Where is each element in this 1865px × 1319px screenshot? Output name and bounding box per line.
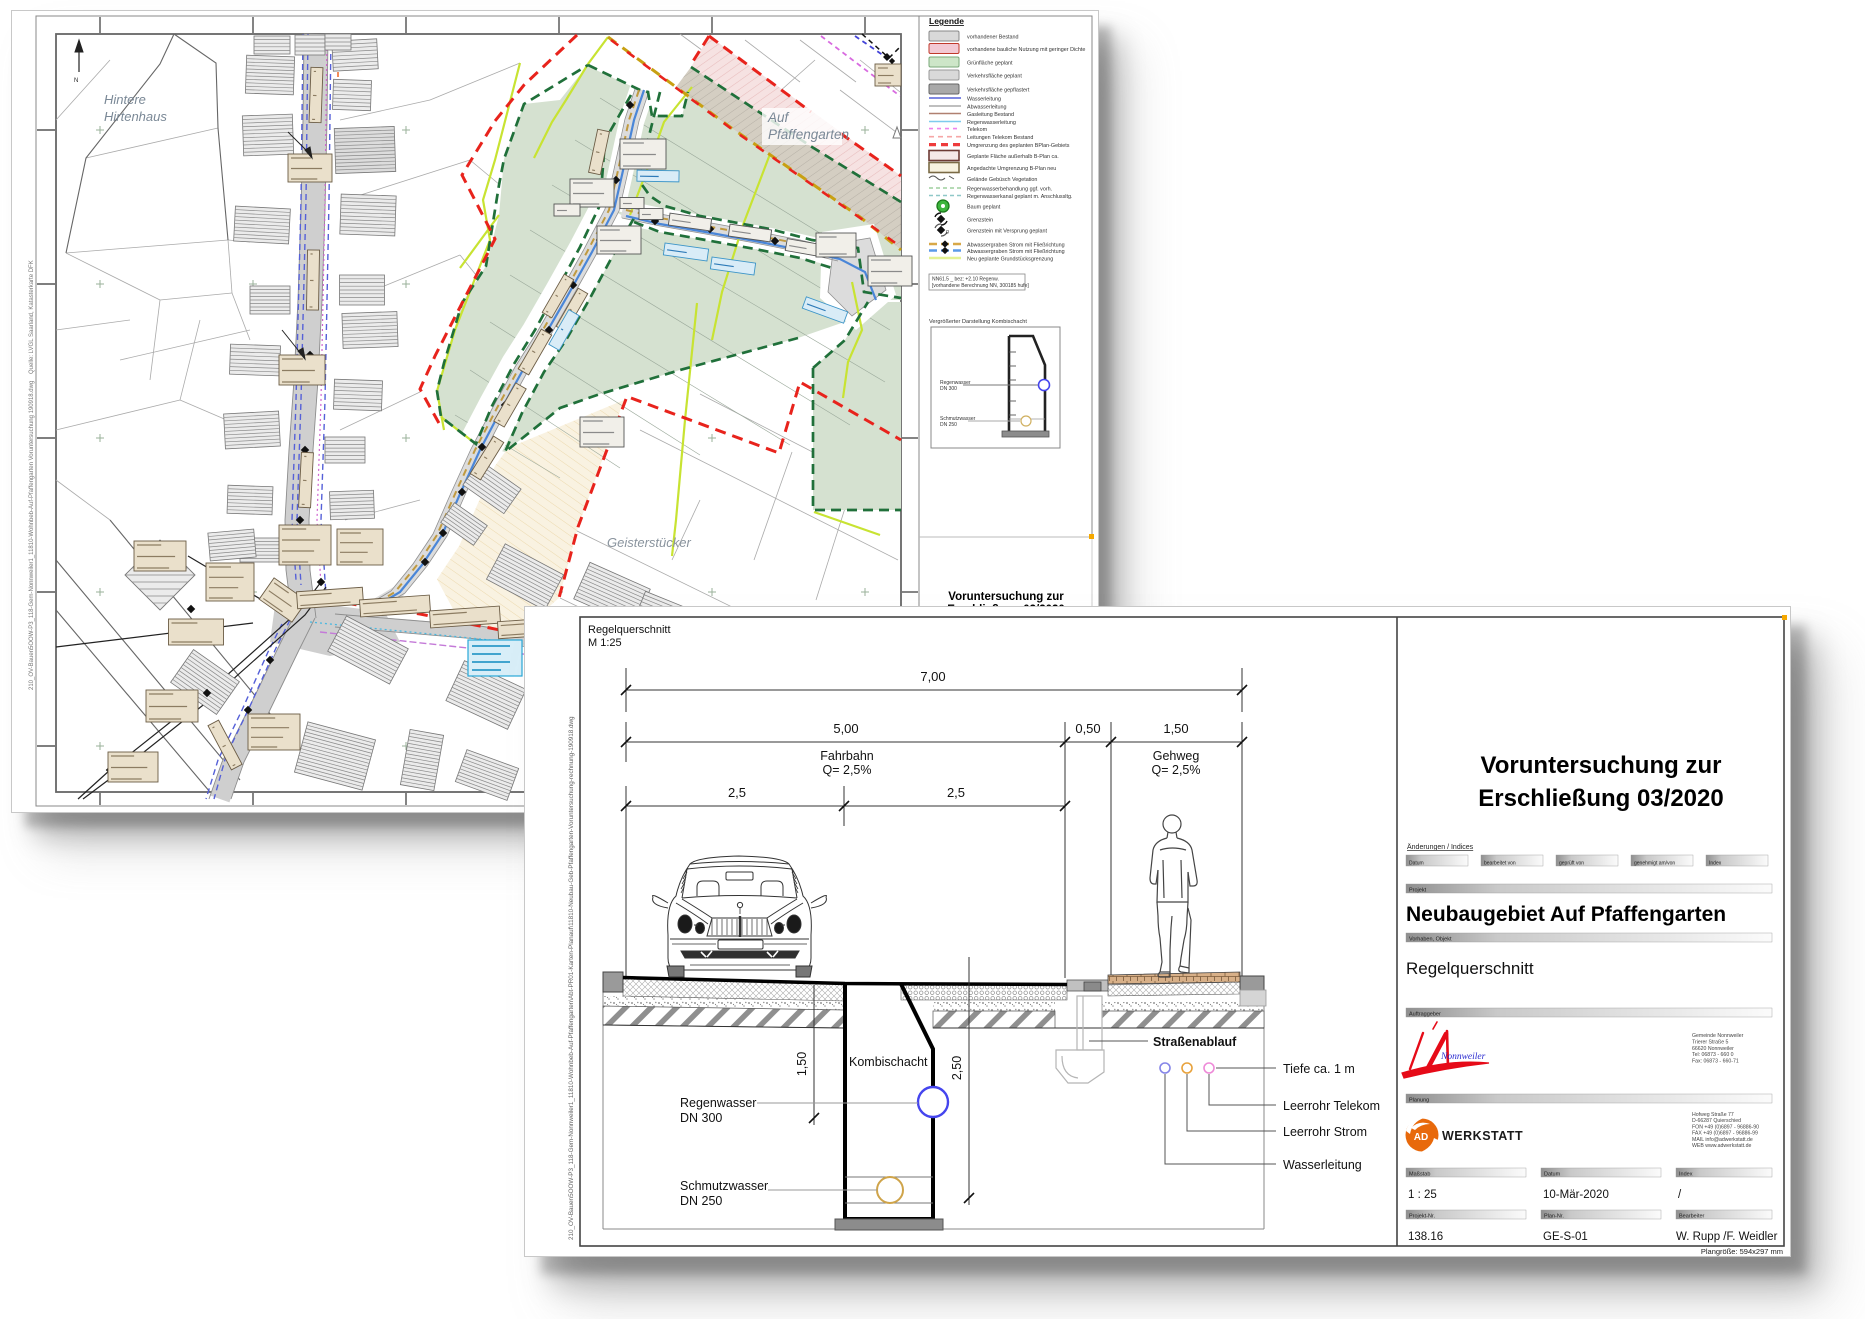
svg-text:Neu geplante Grundstücksgrenzu: Neu geplante Grundstücksgrenzung: [967, 257, 1053, 263]
svg-text:M 1:25: M 1:25: [588, 637, 622, 649]
svg-text:Datum: Datum: [1409, 861, 1424, 867]
svg-text:Regenwasserbehandlung ggf. vor: Regenwasserbehandlung ggf. vorh.: [967, 187, 1052, 193]
svg-text:Grenzstein mit Versprung gepla: Grenzstein mit Versprung geplant: [967, 229, 1048, 235]
svg-text:vorhandene bauliche Nutzung mi: vorhandene bauliche Nutzung mit geringer…: [967, 47, 1085, 53]
svg-text:vorhandener Bestand: vorhandener Bestand: [967, 35, 1019, 41]
svg-text:Telekom: Telekom: [967, 127, 988, 133]
svg-text:geprüft von: geprüft von: [1559, 861, 1584, 867]
svg-text:MAIL info@adwerkstatt.de: MAIL info@adwerkstatt.de: [1692, 1137, 1753, 1143]
svg-text:Leitungen Telekom Bestand: Leitungen Telekom Bestand: [967, 135, 1033, 141]
svg-text:Kombischacht: Kombischacht: [849, 1055, 928, 1069]
svg-text:genehmigt am/von: genehmigt am/von: [1634, 861, 1675, 867]
svg-text:Angedachte Umgrenzung B-Plan n: Angedachte Umgrenzung B-Plan neu: [967, 166, 1056, 172]
svg-text:0,50: 0,50: [1075, 721, 1100, 736]
svg-text:DN 250: DN 250: [680, 1194, 722, 1208]
svg-text:Q= 2,5%: Q= 2,5%: [1152, 763, 1201, 777]
svg-text:Nonnweiler: Nonnweiler: [1440, 1052, 1486, 1062]
svg-text:/: /: [1678, 1189, 1682, 1201]
svg-text:W. Rupp /F. Weidler: W. Rupp /F. Weidler: [1676, 1231, 1778, 1243]
svg-text:N: N: [74, 78, 78, 84]
svg-text:Trierer Straße 5: Trierer Straße 5: [1692, 1039, 1729, 1045]
svg-text:NN61.5 _ bez: +2.10 Regenw.: NN61.5 _ bez: +2.10 Regenw.: [932, 277, 999, 283]
svg-text:66620 Nonnweiler: 66620 Nonnweiler: [1692, 1046, 1734, 1052]
svg-text:Bearbeiter: Bearbeiter: [1679, 1214, 1705, 1220]
svg-text:FON +49 (0)6897 - 96886-90: FON +49 (0)6897 - 96886-90: [1692, 1124, 1759, 1130]
svg-text:Maßstab: Maßstab: [1409, 1172, 1430, 1178]
svg-text:Wasserleitung: Wasserleitung: [967, 97, 1001, 103]
svg-text:1,50: 1,50: [1163, 721, 1188, 736]
svg-text:Umgrenzung des geplanten BPlan: Umgrenzung des geplanten BPlan-Gebiets: [967, 143, 1070, 149]
svg-text:Q= 2,5%: Q= 2,5%: [823, 763, 872, 777]
svg-text:Regelquerschnitt: Regelquerschnitt: [588, 624, 671, 636]
svg-text:Voruntersuchung zur: Voruntersuchung zur: [1481, 752, 1722, 779]
svg-text:Pfaffengarten: Pfaffengarten: [768, 127, 849, 142]
svg-text:Regenwasser: Regenwasser: [680, 1096, 756, 1110]
svg-text:g: g: [946, 229, 949, 235]
svg-text:Gemeinde Nonnweiler: Gemeinde Nonnweiler: [1692, 1033, 1744, 1039]
svg-text:Schmutzwasser: Schmutzwasser: [680, 1179, 768, 1193]
svg-text:Legende: Legende: [929, 16, 964, 26]
svg-text:Planung: Planung: [1409, 1098, 1429, 1104]
svg-text:Neubaugebiet Auf Pfaffengarten: Neubaugebiet Auf Pfaffengarten: [1406, 903, 1726, 926]
svg-text:Hintere: Hintere: [104, 92, 146, 107]
svg-text:Wasserleitung: Wasserleitung: [1283, 1158, 1362, 1172]
svg-text:D-66287 Quierschied: D-66287 Quierschied: [1692, 1118, 1741, 1124]
svg-text:DN 300: DN 300: [940, 386, 957, 392]
svg-text:Baum geplant: Baum geplant: [967, 205, 1001, 211]
svg-text:7,00: 7,00: [920, 669, 945, 684]
svg-text:Hirtenhaus: Hirtenhaus: [104, 109, 167, 124]
svg-text:2,5: 2,5: [728, 785, 746, 800]
svg-text:210_OV-Bauen5OOW-P3_118-Gem-No: 210_OV-Bauen5OOW-P3_118-Gem-Nonnweiler1_…: [568, 716, 575, 1240]
svg-text:Verkehrsfläche gepflastert: Verkehrsfläche gepflastert: [967, 88, 1030, 94]
svg-text:Auf: Auf: [767, 110, 790, 125]
svg-text:Straßenablauf: Straßenablauf: [1153, 1035, 1237, 1049]
svg-text:Voruntersuchung zur: Voruntersuchung zur: [948, 591, 1064, 603]
svg-text:Leerrohr Strom: Leerrohr Strom: [1283, 1125, 1367, 1139]
svg-text:Regenwasserleitung: Regenwasserleitung: [967, 120, 1016, 126]
svg-text:[vorhandene Berechnung NN, 300: [vorhandene Berechnung NN, 300185 hufe]: [932, 283, 1029, 289]
svg-text:2,5: 2,5: [947, 785, 965, 800]
svg-text:Plangröße: 594x297 mm: Plangröße: 594x297 mm: [1701, 1247, 1783, 1256]
svg-text:Fax: 06873 - 660-71: Fax: 06873 - 660-71: [1692, 1059, 1739, 1065]
svg-text:Tiefe ca. 1 m: Tiefe ca. 1 m: [1283, 1062, 1355, 1076]
svg-text:Vergrößerter Darstellung Kombi: Vergrößerter Darstellung Kombischacht: [929, 319, 1027, 325]
svg-text:Änderungen / Indices: Änderungen / Indices: [1407, 843, 1474, 851]
svg-text:Plan-Nr.: Plan-Nr.: [1544, 1214, 1564, 1220]
svg-text:DN 250: DN 250: [940, 422, 957, 428]
svg-text:Index: Index: [1709, 861, 1722, 867]
svg-text:Grenzstein: Grenzstein: [967, 218, 993, 224]
svg-text:Vorhaben, Objekt: Vorhaben, Objekt: [1409, 937, 1452, 943]
svg-text:Erschließung 03/2020: Erschließung 03/2020: [1478, 785, 1723, 812]
svg-text:Hofweg Straße 77: Hofweg Straße 77: [1692, 1112, 1734, 1118]
svg-text:Regenwasserkanal geplant m. An: Regenwasserkanal geplant m. Anschlussltg…: [967, 194, 1072, 200]
svg-text:Gehweg: Gehweg: [1153, 749, 1200, 763]
svg-text:GE-S-01: GE-S-01: [1543, 1231, 1588, 1243]
svg-text:Gelände Gebüsch Vegetation: Gelände Gebüsch Vegetation: [967, 177, 1037, 183]
svg-text:AD: AD: [1414, 1132, 1428, 1143]
svg-text:Projekt-Nr.: Projekt-Nr.: [1409, 1214, 1435, 1220]
svg-text:Abwassergraben Strom mit Fließ: Abwassergraben Strom mit Fließrichtung: [967, 249, 1065, 255]
svg-text:Abwasserleitung: Abwasserleitung: [967, 105, 1007, 111]
svg-text:Datum: Datum: [1544, 1172, 1561, 1178]
svg-text:2,50: 2,50: [950, 1056, 964, 1080]
svg-text:Grünfläche geplant: Grünfläche geplant: [967, 61, 1013, 67]
svg-text:WEB www.adwerkstatt.de: WEB www.adwerkstatt.de: [1692, 1143, 1752, 1149]
svg-text:Fahrbahn: Fahrbahn: [820, 749, 874, 763]
svg-text:Tel: 06873 - 660 0: Tel: 06873 - 660 0: [1692, 1052, 1734, 1058]
svg-text:Geisterstücker: Geisterstücker: [607, 535, 691, 550]
svg-text:1,50: 1,50: [795, 1052, 809, 1076]
svg-text:1 : 25: 1 : 25: [1408, 1189, 1437, 1201]
svg-text:Leerrohr Telekom: Leerrohr Telekom: [1283, 1099, 1380, 1113]
svg-text:FAX +49 (0)6897 - 96886-99: FAX +49 (0)6897 - 96886-99: [1692, 1131, 1758, 1137]
svg-text:10-Mär-2020: 10-Mär-2020: [1543, 1189, 1609, 1201]
svg-text:Abwassergraben Strom mit Fließ: Abwassergraben Strom mit Fließrichtung: [967, 243, 1065, 249]
svg-text:Gasleitung Bestand: Gasleitung Bestand: [967, 112, 1014, 118]
svg-text:5,00: 5,00: [833, 721, 858, 736]
svg-text:Projekt: Projekt: [1409, 888, 1427, 894]
svg-text:Index: Index: [1679, 1172, 1693, 1178]
svg-text:Geplante Fläche außerhalb B-Pl: Geplante Fläche außerhalb B-Plan ca.: [967, 154, 1059, 160]
svg-text:DN 300: DN 300: [680, 1111, 722, 1125]
svg-text:Auftraggeber: Auftraggeber: [1409, 1012, 1441, 1018]
svg-text:bearbeitet von: bearbeitet von: [1484, 861, 1516, 867]
svg-text:Verkehrsfläche geplant: Verkehrsfläche geplant: [967, 74, 1022, 80]
svg-text:210_OV-Bauen5OOW-P3_118-Gem-No: 210_OV-Bauen5OOW-P3_118-Gem-Nonnweiler1_…: [29, 260, 35, 690]
svg-text:Regelquerschnitt: Regelquerschnitt: [1406, 959, 1534, 978]
svg-text:138.16: 138.16: [1408, 1231, 1443, 1243]
svg-text:WERKSTATT: WERKSTATT: [1442, 1129, 1523, 1143]
